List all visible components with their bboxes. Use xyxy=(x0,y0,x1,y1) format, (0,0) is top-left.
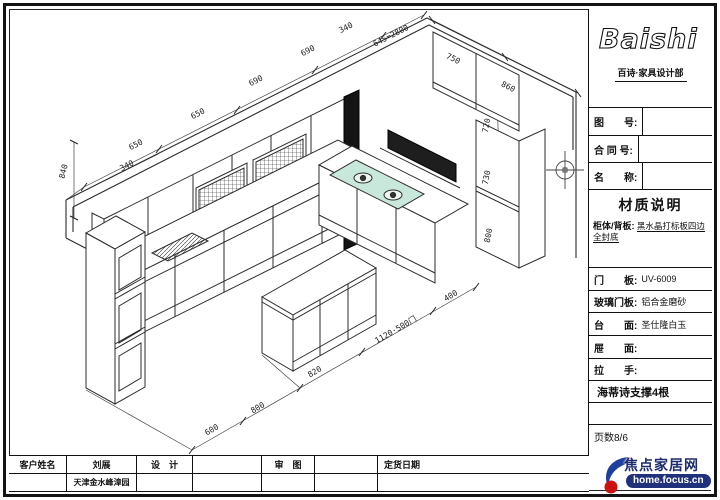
material-section: 材质说明 柜体/背板: 黑水晶打标板四边全封底 xyxy=(589,190,712,268)
logo-subtitle: 百诗·家具设计部 xyxy=(615,66,687,82)
watermark: 焦点家居网 home.focus.cn xyxy=(600,454,716,496)
review-value-cell xyxy=(315,456,378,474)
order-date-label-cell: 定货日期 xyxy=(378,456,589,474)
material-label: 门 板: xyxy=(594,272,637,287)
design-value-cell xyxy=(193,456,262,474)
customer-label-cell: 客户姓名 xyxy=(9,456,67,474)
field-label: 名 称: xyxy=(594,169,637,184)
material-label: 台 面: xyxy=(594,317,637,332)
material-title: 材质说明 xyxy=(593,195,708,215)
field-name: 名 称: xyxy=(589,163,712,190)
logo-text: Baishi xyxy=(599,24,698,55)
design-label-cell: 设 计 xyxy=(137,456,193,474)
material-value: 铝合金磨砂 xyxy=(641,295,686,308)
baishi-logo: Baishi xyxy=(593,19,708,57)
address-cell: 天津金水峰漳园 xyxy=(67,474,137,492)
row-handle: 拉 手: xyxy=(589,359,712,381)
field-value xyxy=(642,163,707,189)
material-value: UV-6009 xyxy=(641,274,676,284)
logo-section: Baishi 百诗·家具设计部 xyxy=(589,9,712,108)
field-value xyxy=(638,136,707,162)
hardware-note: 海蒂诗支撑4根 xyxy=(589,381,712,403)
review-label-cell: 审 图 xyxy=(262,456,315,474)
watermark-site-name: 焦点家居网 xyxy=(624,455,699,475)
field-drawing-no: 图 号: xyxy=(589,108,712,136)
row-door-panel: 门 板: UV-6009 xyxy=(589,268,712,291)
material-label: 玻璃门板: xyxy=(594,294,637,309)
row-countertop: 台 面: 圣仕隆白玉 xyxy=(589,313,712,336)
empty-cell xyxy=(315,474,378,492)
material-label: 屉 面: xyxy=(594,340,637,355)
empty-row xyxy=(589,403,712,425)
field-label: 图 号: xyxy=(594,114,637,129)
empty-cell xyxy=(262,474,315,492)
empty-cell xyxy=(9,474,67,492)
empty-cell xyxy=(378,474,589,492)
material-label: 柜体/背板: xyxy=(593,221,635,231)
empty-cell xyxy=(137,474,193,492)
title-block: Baishi 百诗·家具设计部 图 号: 合 同 号: 名 称: 材质说明 柜体… xyxy=(588,9,712,490)
empty-cell xyxy=(193,474,262,492)
field-contract-no: 合 同 号: xyxy=(589,136,712,163)
row-glass-door: 玻璃门板: 铝合金磨砂 xyxy=(589,291,712,313)
customer-name-cell: 刘展 xyxy=(67,456,137,474)
field-value xyxy=(642,108,707,135)
bottom-info-table: 客户姓名 刘展 设 计 审 图 定货日期 天津金水峰漳园 xyxy=(9,455,589,491)
field-label: 合 同 号: xyxy=(594,142,633,157)
watermark-site-url: home.focus.cn xyxy=(626,474,711,488)
material-value: 圣仕隆白玉 xyxy=(641,318,686,331)
material-label: 拉 手: xyxy=(594,362,637,377)
cad-drawing-page: 650650690690340645=280034084075086072073… xyxy=(0,0,720,500)
row-drawer-face: 屉 面: xyxy=(589,336,712,359)
